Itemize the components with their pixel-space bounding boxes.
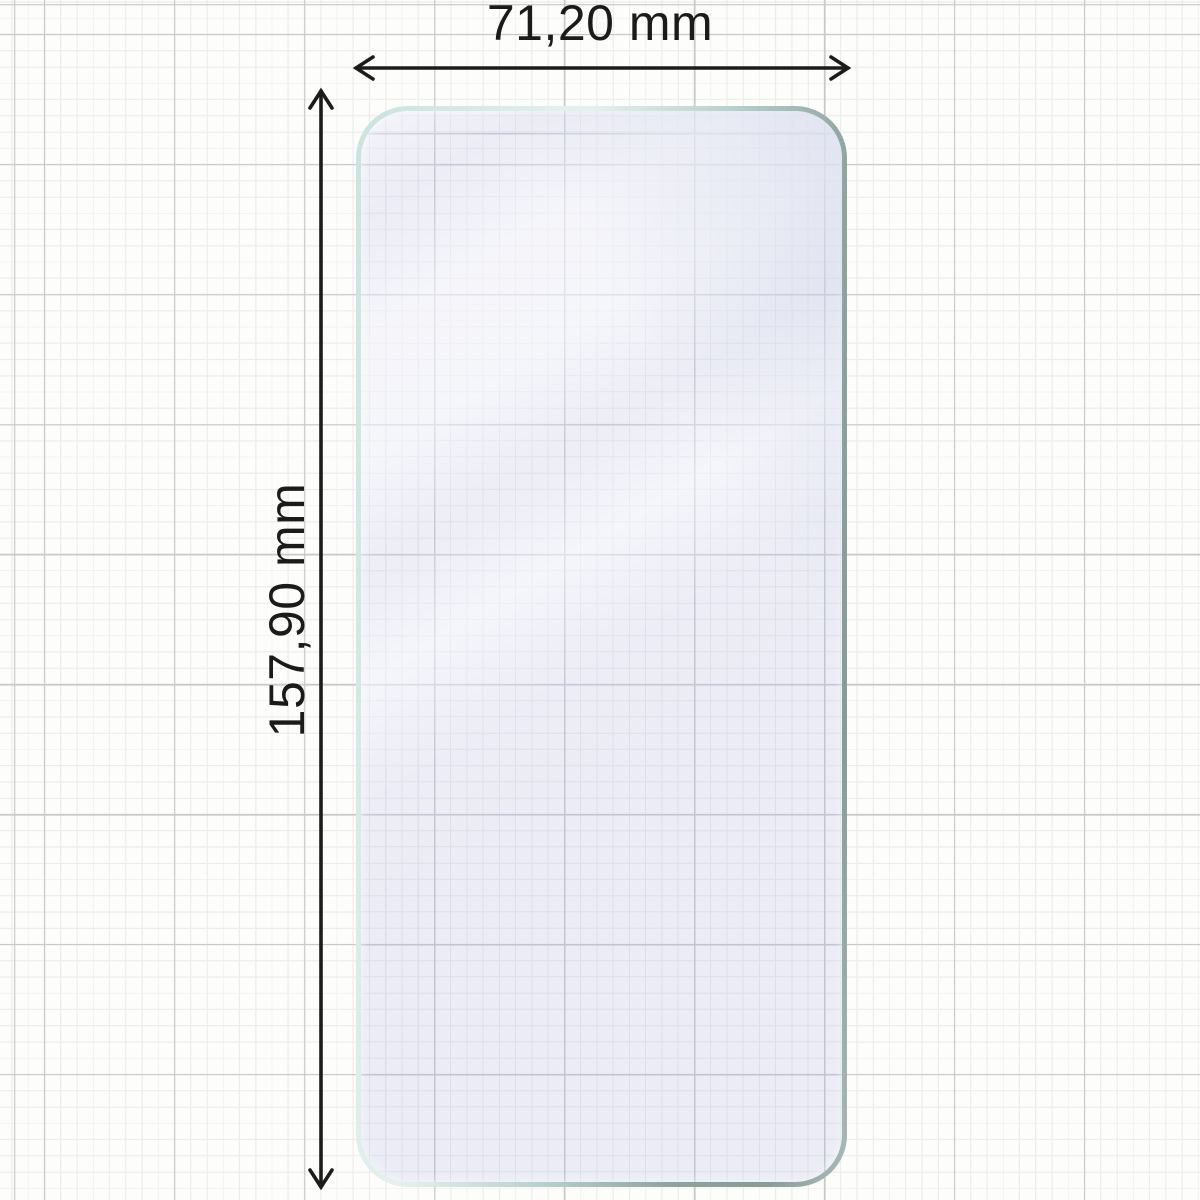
glass-reflection — [361, 111, 842, 1182]
dimension-diagram: 71,20 mm 157,90 mm — [0, 0, 1200, 1200]
width-dimension-arrow — [350, 52, 854, 84]
height-dimension-label: 157,90 mm — [258, 483, 316, 738]
width-dimension-label: 71,20 mm — [352, 0, 848, 52]
screen-protector — [356, 106, 847, 1187]
glass-corner-shade — [361, 111, 842, 1182]
screen-protector-surface — [361, 111, 842, 1182]
